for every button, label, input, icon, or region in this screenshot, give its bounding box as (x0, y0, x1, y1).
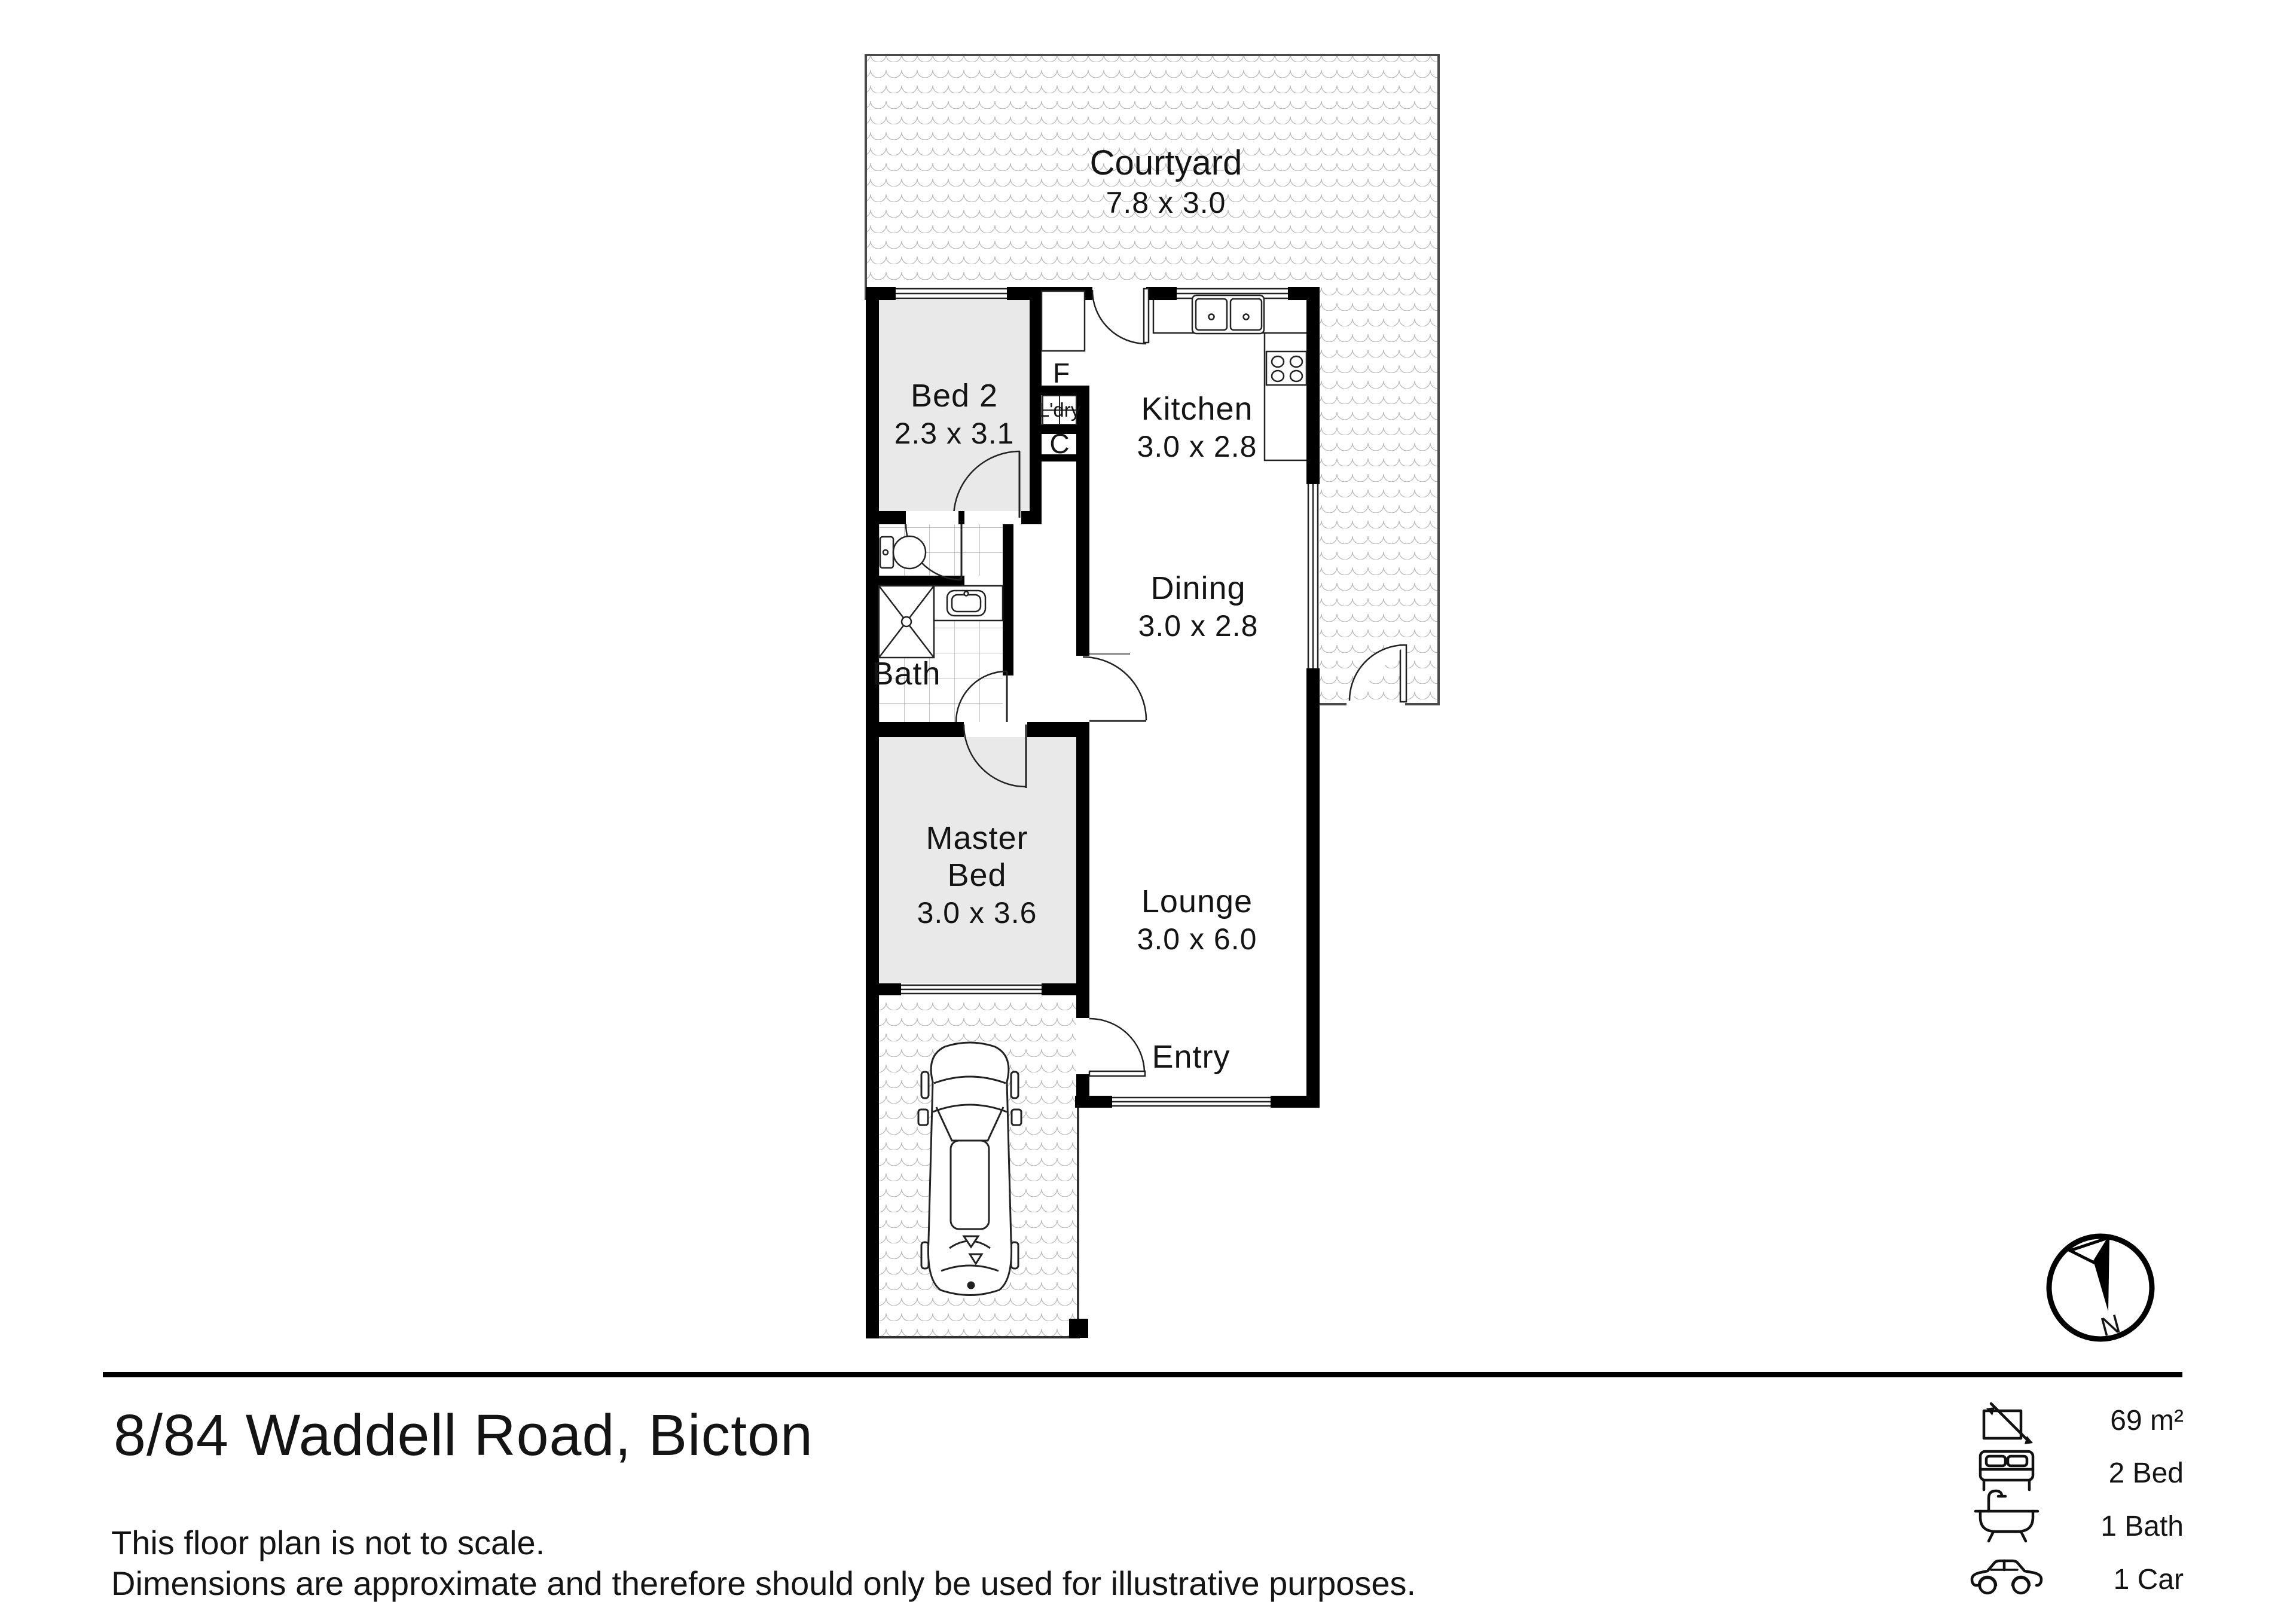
bed2-label: Bed 2 (911, 378, 998, 414)
entry-door (1076, 1018, 1145, 1076)
courtyard-label: Courtyard (1090, 143, 1242, 182)
floor-plan-canvas: Courtyard 7.8 x 3.0 Bed 2 2.3 x 3.1 F L'… (0, 0, 2296, 1623)
stat-area: 69 m² (2110, 1405, 2184, 1436)
fridge-label: F (1053, 357, 1070, 389)
disclaimer-line1: This floor plan is not to scale. (111, 1524, 545, 1561)
hall-dining-door (1076, 654, 1146, 722)
master-bed-label-line2: Bed (947, 857, 1006, 893)
bed2-dims: 2.3 x 3.1 (894, 417, 1015, 450)
toilet-fixture (880, 536, 926, 568)
bath-label: Bath (872, 656, 941, 692)
car-icon (1972, 1561, 2041, 1593)
stat-baths: 1 Bath (2100, 1511, 2184, 1542)
carport-area (866, 995, 1088, 1338)
dining-label: Dining (1150, 570, 1245, 606)
courtyard-dims: 7.8 x 3.0 (1106, 186, 1226, 219)
entry-label: Entry (1152, 1039, 1230, 1075)
master-bed-dims: 3.0 x 3.6 (917, 896, 1037, 930)
disclaimer-line2: Dimensions are approximate and therefore… (111, 1564, 1416, 1602)
area-icon (1984, 1404, 2033, 1444)
carport-post (1069, 1319, 1088, 1338)
master-bed-label-line1: Master (926, 820, 1028, 856)
dining-dims: 3.0 x 2.8 (1138, 609, 1259, 643)
bed-icon (1980, 1451, 2033, 1490)
fridge-recess (1042, 291, 1085, 351)
floor-plan-page: Courtyard 7.8 x 3.0 Bed 2 2.3 x 3.1 F L'… (0, 0, 2296, 1623)
bed2-window (896, 287, 1007, 300)
cupboard-label: C (1049, 428, 1069, 459)
vanity-sink-fixture (934, 586, 1003, 621)
footer-divider (103, 1372, 2182, 1377)
kitchen-label: Kitchen (1141, 391, 1253, 427)
dining-sliding-door (1306, 484, 1320, 668)
kitchen-sink-fixture (1153, 295, 1306, 334)
stat-labels: 69 m² 2 Bed 1 Bath 1 Car (2100, 1405, 2184, 1596)
lounge-window (1112, 1096, 1271, 1108)
kitchen-door (1092, 287, 1149, 344)
page-title: 8/84 Waddell Road, Bicton (114, 1402, 813, 1468)
stat-beds: 2 Bed (2109, 1457, 2184, 1489)
shower-fixture (879, 586, 934, 658)
lounge-dims: 3.0 x 6.0 (1137, 922, 1257, 956)
stat-cars: 1 Car (2114, 1564, 2184, 1596)
master-bed-window (901, 983, 1042, 995)
kitchen-dims: 3.0 x 2.8 (1137, 430, 1257, 463)
laundry-label: L'dry (1039, 399, 1081, 421)
car-top-view (918, 1043, 1021, 1295)
cooktop-fixture (1266, 352, 1306, 385)
north-compass-icon: N (2049, 1236, 2152, 1342)
lounge-label: Lounge (1141, 884, 1253, 919)
bath-icon (1976, 1491, 2038, 1541)
stat-icons (1972, 1404, 2041, 1593)
